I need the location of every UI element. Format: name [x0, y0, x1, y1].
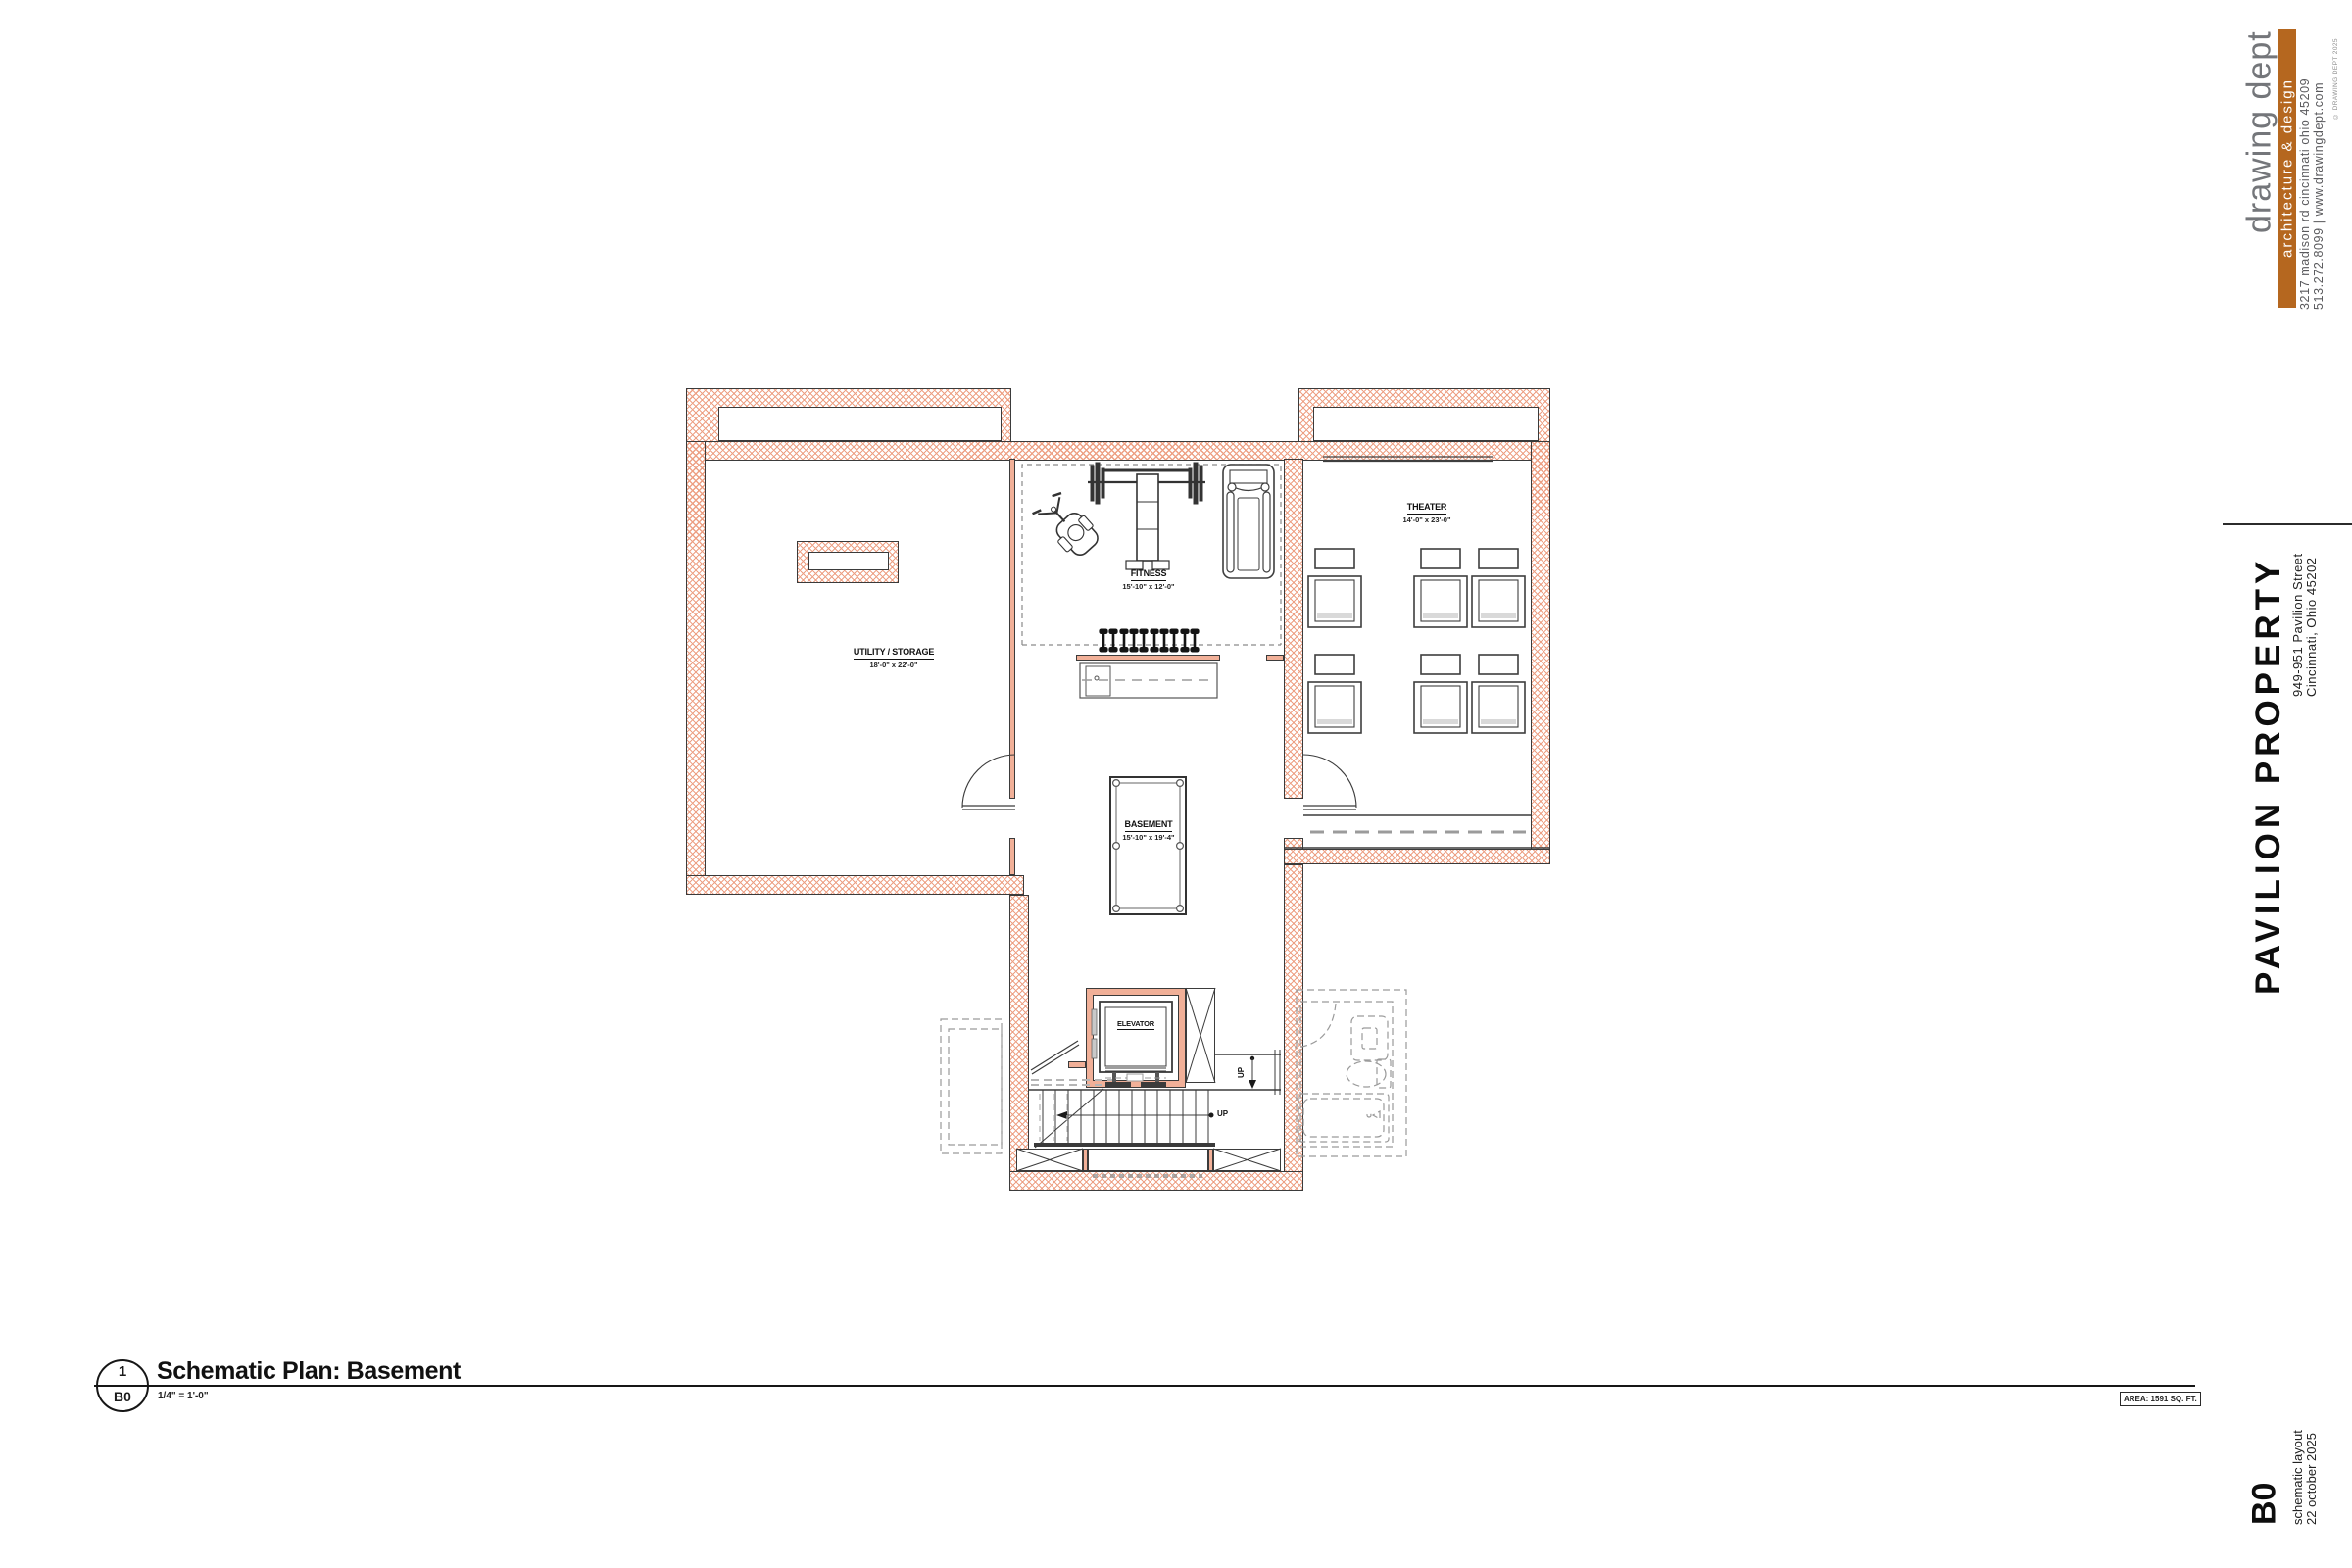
room-dims: 15'-10" x 12'-0"	[1122, 582, 1174, 591]
pool-table	[1110, 777, 1186, 914]
room-name: BASEMENT	[1125, 819, 1173, 832]
room-name: UTILITY / STORAGE	[854, 647, 934, 660]
firm-tagline-bar: architecture & design	[2278, 29, 2296, 308]
stair-up-label: UP	[1217, 1109, 1228, 1118]
door-to-theater	[1303, 755, 1356, 809]
plan-title: Schematic Plan: Basement	[157, 1357, 461, 1386]
room-label-theater: THEATER 14'-0" x 23'-0"	[1358, 502, 1495, 524]
room-dims: 15'-10" x 19'-4"	[1122, 833, 1174, 842]
floor-plan: UTILITY / STORAGE 18'-0" x 22'-0" FITNES…	[681, 382, 1555, 1200]
detail-sheet-ref: B0	[96, 1389, 149, 1404]
room-dims: 14'-0" x 23'-0"	[1402, 515, 1450, 524]
room-label-elevator: ELEVATOR	[1087, 1019, 1185, 1030]
room-name: ELEVATOR	[1117, 1019, 1154, 1030]
project-address-line2: Cincinnati, Ohio 45202	[2304, 540, 2319, 697]
project-title: PAVILION PROPERTY	[2248, 539, 2289, 995]
theater-seats	[1308, 549, 1525, 733]
treadmill	[1223, 465, 1274, 578]
areaway-bracing	[1016, 1149, 1281, 1171]
firm-logo: drawing dept	[2240, 24, 2279, 233]
dumbbell-rack	[1099, 629, 1199, 653]
sheet-date: 22 october 2025	[2304, 1407, 2319, 1525]
detail-number: 1	[96, 1363, 149, 1380]
room-name: THEATER	[1407, 502, 1446, 514]
room-label-fitness: FITNESS 15'-10" x 12'-0"	[1080, 568, 1217, 591]
porch-above-dashed	[941, 1019, 1002, 1153]
sheet-phase: schematic layout	[2290, 1407, 2305, 1525]
firm-contact: 513.272.8099 | www.drawingdept.com	[2312, 29, 2326, 310]
room-label-basement: BASEMENT 15'-10" x 19'-4"	[1080, 819, 1217, 842]
project-address-line1: 949-951 Pavilion Street	[2290, 540, 2305, 697]
plan-scale: 1/4" = 1'-0"	[158, 1391, 209, 1401]
elevator-room-door	[1031, 1041, 1079, 1074]
room-dims: 18'-0" x 22'-0"	[869, 661, 917, 669]
door-to-utility	[962, 755, 1015, 809]
firm-address: 3217 madison rd cincinnati ohio 45209	[2298, 29, 2312, 310]
stair-flight	[1029, 1089, 1215, 1148]
room-name: FITNESS	[1131, 568, 1167, 581]
bench-press	[1088, 463, 1205, 569]
area-tag: AREA: 1591 SQ. FT.	[2120, 1392, 2201, 1406]
drawing-sheet: drawing dept architecture & design 3217 …	[0, 0, 2352, 1568]
copyright-note: © DRAWING DEPT 2025	[2332, 31, 2339, 120]
bar-counter	[1080, 663, 1217, 698]
elevator-cab	[1092, 988, 1215, 1088]
margin-divider-line	[2223, 523, 2352, 525]
theater-screen	[1323, 457, 1493, 461]
elevator-landing	[1215, 1050, 1281, 1095]
sheet-number: B0	[2246, 1478, 2283, 1525]
theater-south-opening	[1284, 815, 1550, 848]
elevator-up-label: UP	[1237, 1054, 1246, 1078]
room-label-utility: UTILITY / STORAGE 18'-0" x 22'-0"	[825, 647, 962, 669]
bathroom-above-dashed	[1295, 990, 1406, 1156]
